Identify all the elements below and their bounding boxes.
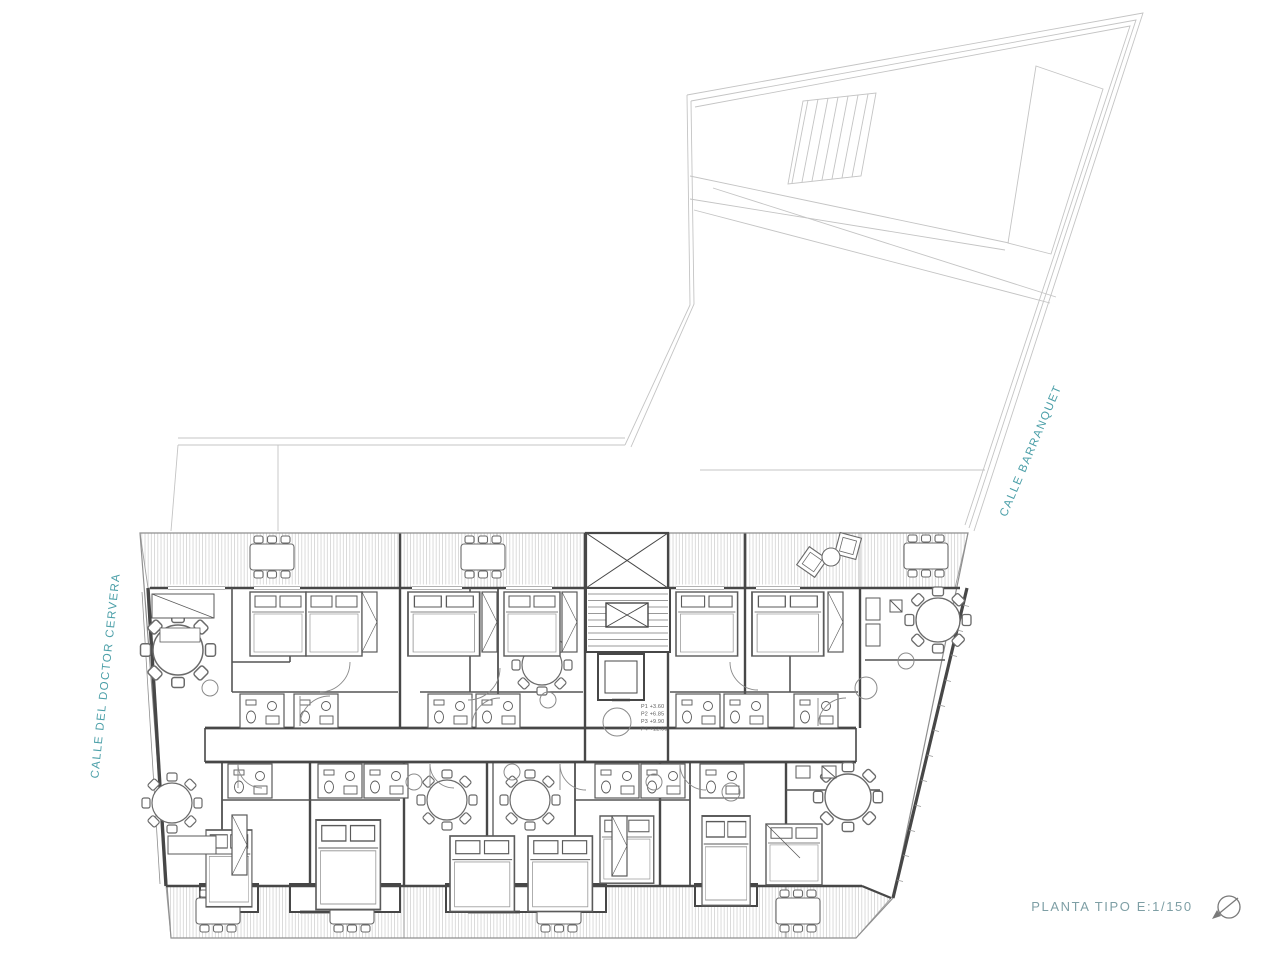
elevator [598,654,644,700]
neighbor-plot-outline [690,66,1103,303]
street-label-left: CALLE DEL DOCTOR CERVERA [89,572,123,779]
street-label-right: CALLE BARRANQUET [998,383,1064,518]
level-note-1: P1 +3.60 [641,704,664,710]
floor-plan-canvas: P1 +3.60 P2 +6.85 P3 +9.90 P4 +12.95 CAL… [0,0,1280,960]
plan-title: PLANTA TIPO E:1/150 [1031,899,1192,914]
level-annotations: P1 +3.60 P2 +6.85 P3 +9.90 P4 +12.95 [641,704,668,733]
level-note-2: P2 +6.85 [641,712,664,718]
level-note-4: P4 +12.95 [641,727,668,733]
site-plot-boundary [171,13,1143,531]
furniture-beds [206,592,824,912]
level-note-3: P3 +9.90 [641,719,664,725]
parking-ramp-hatch [788,93,876,184]
stair-core [586,588,670,652]
light-well [586,533,668,588]
corridor [205,728,856,762]
north-arrow-icon [1212,896,1240,919]
drawing-sheet: P1 +3.60 P2 +6.85 P3 +9.90 P4 +12.95 CAL… [0,0,1280,960]
